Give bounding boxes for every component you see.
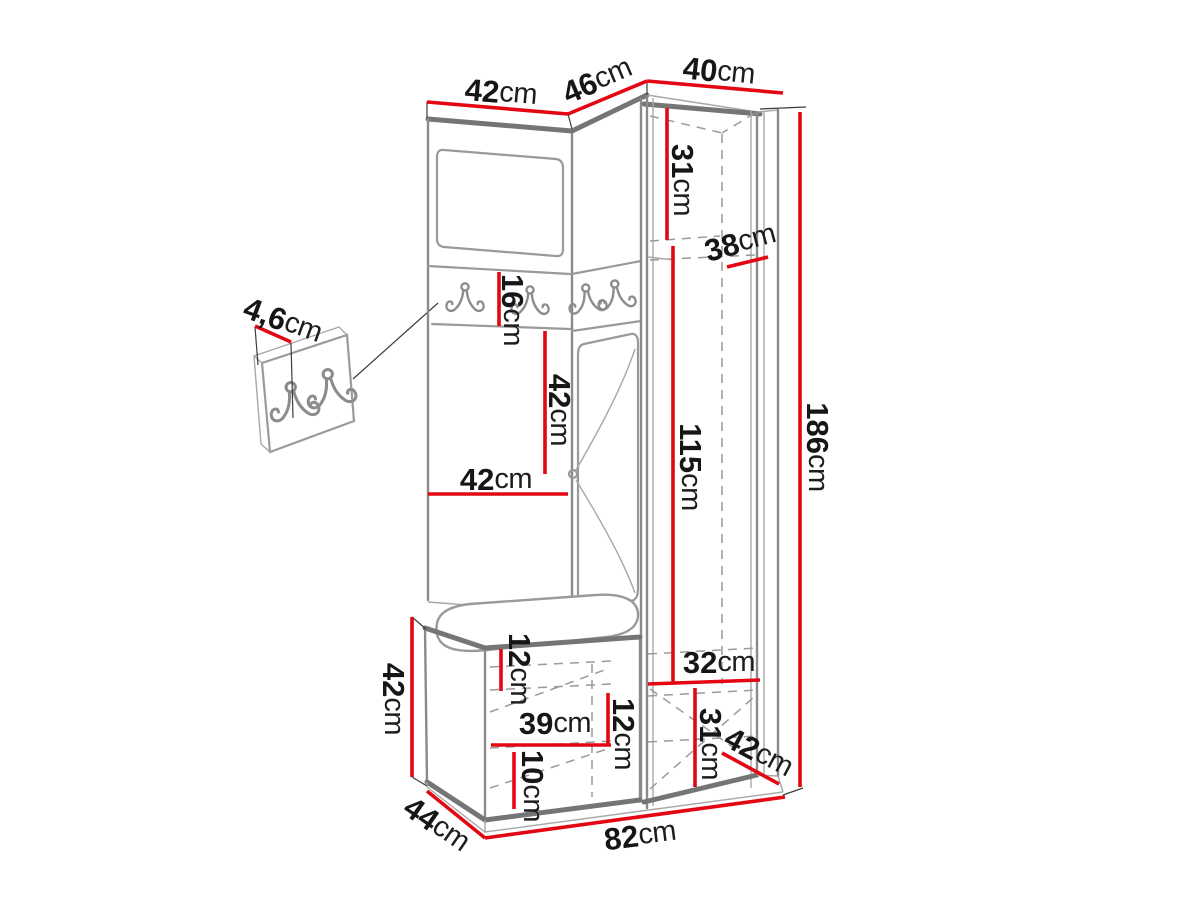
left-cabinet <box>428 119 572 613</box>
diagram-canvas: 42cm 46cm 40cm 31cm 38cm 4,6cm 16cm 42cm… <box>0 0 1200 900</box>
detail-pointer-line <box>353 303 438 379</box>
dim-left-width-label: 42cm <box>460 462 532 497</box>
padded-panel <box>578 334 638 607</box>
dimension-labels: 42cm 46cm 40cm 31cm 38cm 4,6cm 16cm 42cm… <box>239 50 835 859</box>
dim-lower-inner-width-label: 32cm <box>683 645 755 680</box>
dim-upper-inner-height-label: 31cm <box>666 144 701 216</box>
dim-bench-height-label: 42cm <box>377 663 412 735</box>
corner-section <box>567 95 647 607</box>
dim-top-left-width-label: 42cm <box>464 71 539 112</box>
dim-bench-inner-width-label: 39cm <box>519 706 591 741</box>
dim-total-width-label: 82cm <box>602 813 678 857</box>
lower-inner-width-line <box>648 680 760 684</box>
dim-panel-thickness-label: 4,6cm <box>239 290 327 351</box>
dim-bench-top-inset-label: 12cm <box>503 633 538 705</box>
dim-upper-depth-label: 38cm <box>701 216 780 268</box>
coat-hook-icon <box>446 283 483 310</box>
mirror-panel <box>437 150 563 256</box>
dim-padded-panel-height-label: 42cm <box>543 374 578 446</box>
dim-hook-panel-height-label: 16cm <box>496 274 531 346</box>
detail-panel-front <box>262 335 354 452</box>
dim-bench-shelf-spacing-label: 12cm <box>607 698 642 770</box>
dim-bench-bottom-inset-label: 10cm <box>516 750 551 822</box>
coat-hook-icon <box>596 278 636 310</box>
dim-wardrobe-inner-height-label: 115cm <box>674 423 709 511</box>
corner-wardrobe <box>641 95 778 808</box>
dim-total-height-label: 186cm <box>801 402 836 491</box>
